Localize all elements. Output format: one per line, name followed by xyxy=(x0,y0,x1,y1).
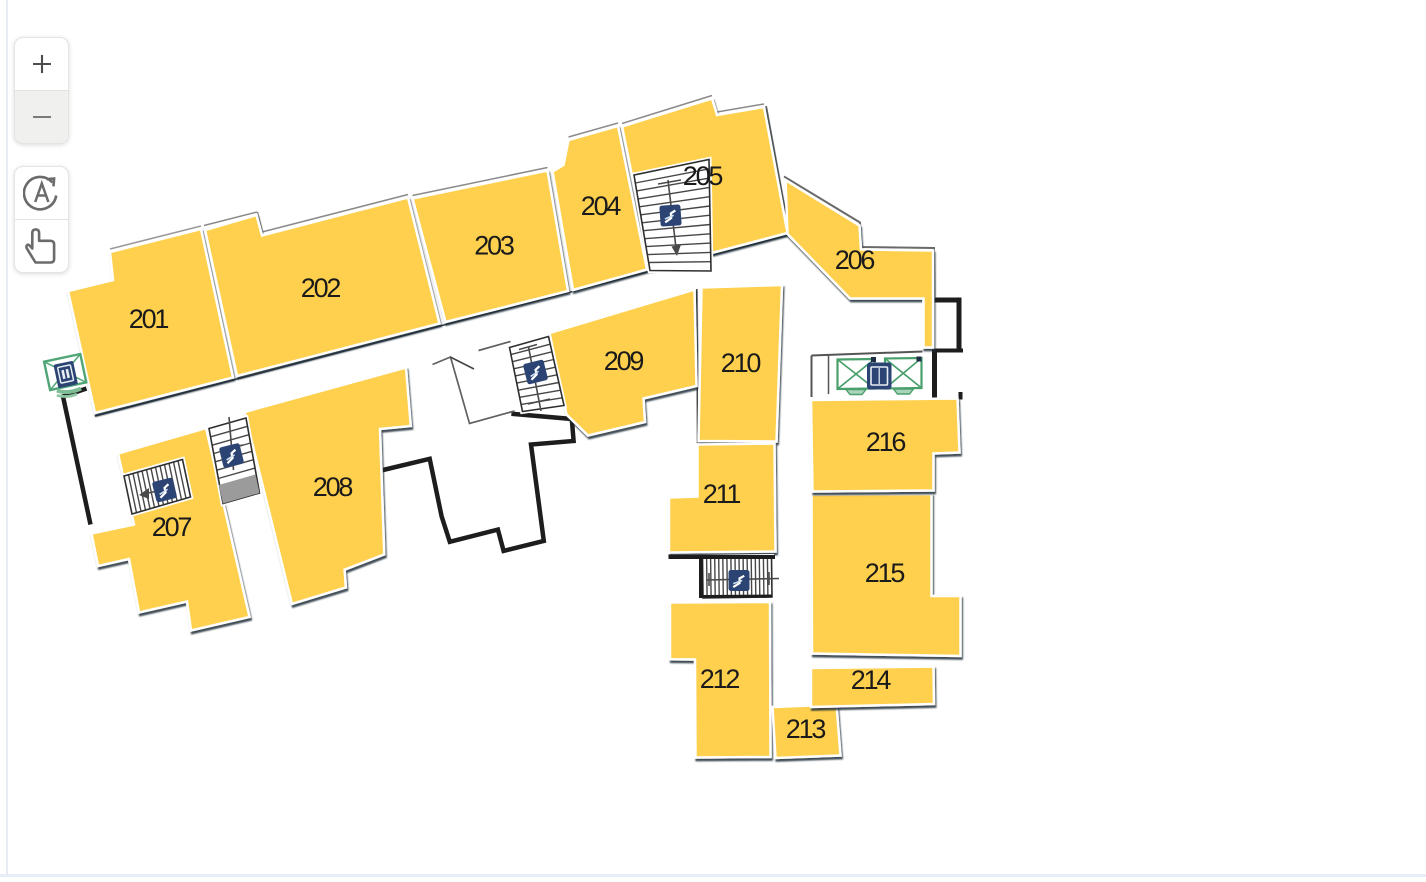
svg-text:207: 207 xyxy=(152,512,192,542)
svg-text:212: 212 xyxy=(700,664,740,694)
svg-text:208: 208 xyxy=(313,472,353,502)
svg-text:216: 216 xyxy=(866,427,906,457)
svg-text:205: 205 xyxy=(683,161,723,191)
svg-text:206: 206 xyxy=(835,245,875,275)
svg-text:213: 213 xyxy=(786,714,826,744)
svg-text:201: 201 xyxy=(129,304,169,334)
svg-text:210: 210 xyxy=(721,348,761,378)
svg-text:211: 211 xyxy=(703,479,741,509)
svg-text:214: 214 xyxy=(851,665,892,695)
svg-text:202: 202 xyxy=(301,273,341,303)
svg-text:204: 204 xyxy=(581,191,622,221)
svg-text:215: 215 xyxy=(865,558,905,588)
svg-text:209: 209 xyxy=(604,346,644,376)
svg-text:203: 203 xyxy=(474,231,514,261)
